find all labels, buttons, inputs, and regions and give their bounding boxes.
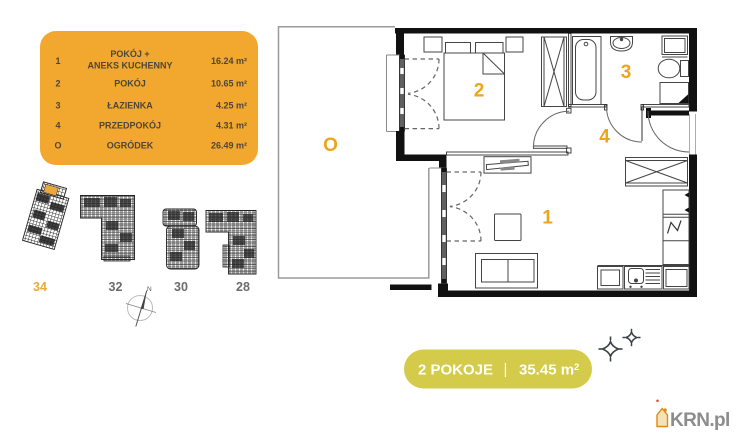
svg-text:30: 30 <box>174 280 188 294</box>
svg-text:|: | <box>504 361 508 378</box>
svg-text:4.25 m²: 4.25 m² <box>216 101 247 111</box>
svg-text:ANEKS KUCHENNY: ANEKS KUCHENNY <box>87 61 172 71</box>
svg-text:35.45 m2: 35.45 m2 <box>519 362 579 379</box>
svg-text:4: 4 <box>55 121 60 131</box>
svg-text:3: 3 <box>55 101 60 111</box>
svg-text:1: 1 <box>55 56 60 66</box>
svg-text:O: O <box>54 141 61 151</box>
svg-text:N: N <box>147 286 152 293</box>
svg-text:10.65 m²: 10.65 m² <box>211 79 247 89</box>
svg-text:26.49 m²: 26.49 m² <box>211 141 247 151</box>
svg-text:3: 3 <box>621 62 632 83</box>
svg-text:32: 32 <box>109 280 123 294</box>
svg-text:PRZEDPOKÓJ: PRZEDPOKÓJ <box>99 120 161 131</box>
svg-text:OGRÓDEK: OGRÓDEK <box>107 140 154 151</box>
svg-text:KRN.pl: KRN.pl <box>670 410 730 431</box>
svg-text:4: 4 <box>599 127 610 148</box>
svg-text:16.24 m²: 16.24 m² <box>211 56 247 66</box>
svg-text:2 POKOJE: 2 POKOJE <box>418 362 493 379</box>
svg-text:1: 1 <box>542 208 553 229</box>
svg-text:2: 2 <box>474 81 485 102</box>
svg-text:4.31 m²: 4.31 m² <box>216 121 247 131</box>
svg-text:O: O <box>323 135 338 156</box>
svg-text:POKÓJ: POKÓJ <box>114 78 146 89</box>
svg-text:POKÓJ +: POKÓJ + <box>110 48 149 59</box>
svg-text:28: 28 <box>236 280 250 294</box>
svg-text:ŁAZIENKA: ŁAZIENKA <box>107 101 153 111</box>
svg-text:2: 2 <box>55 79 60 89</box>
svg-text:34: 34 <box>33 280 47 294</box>
